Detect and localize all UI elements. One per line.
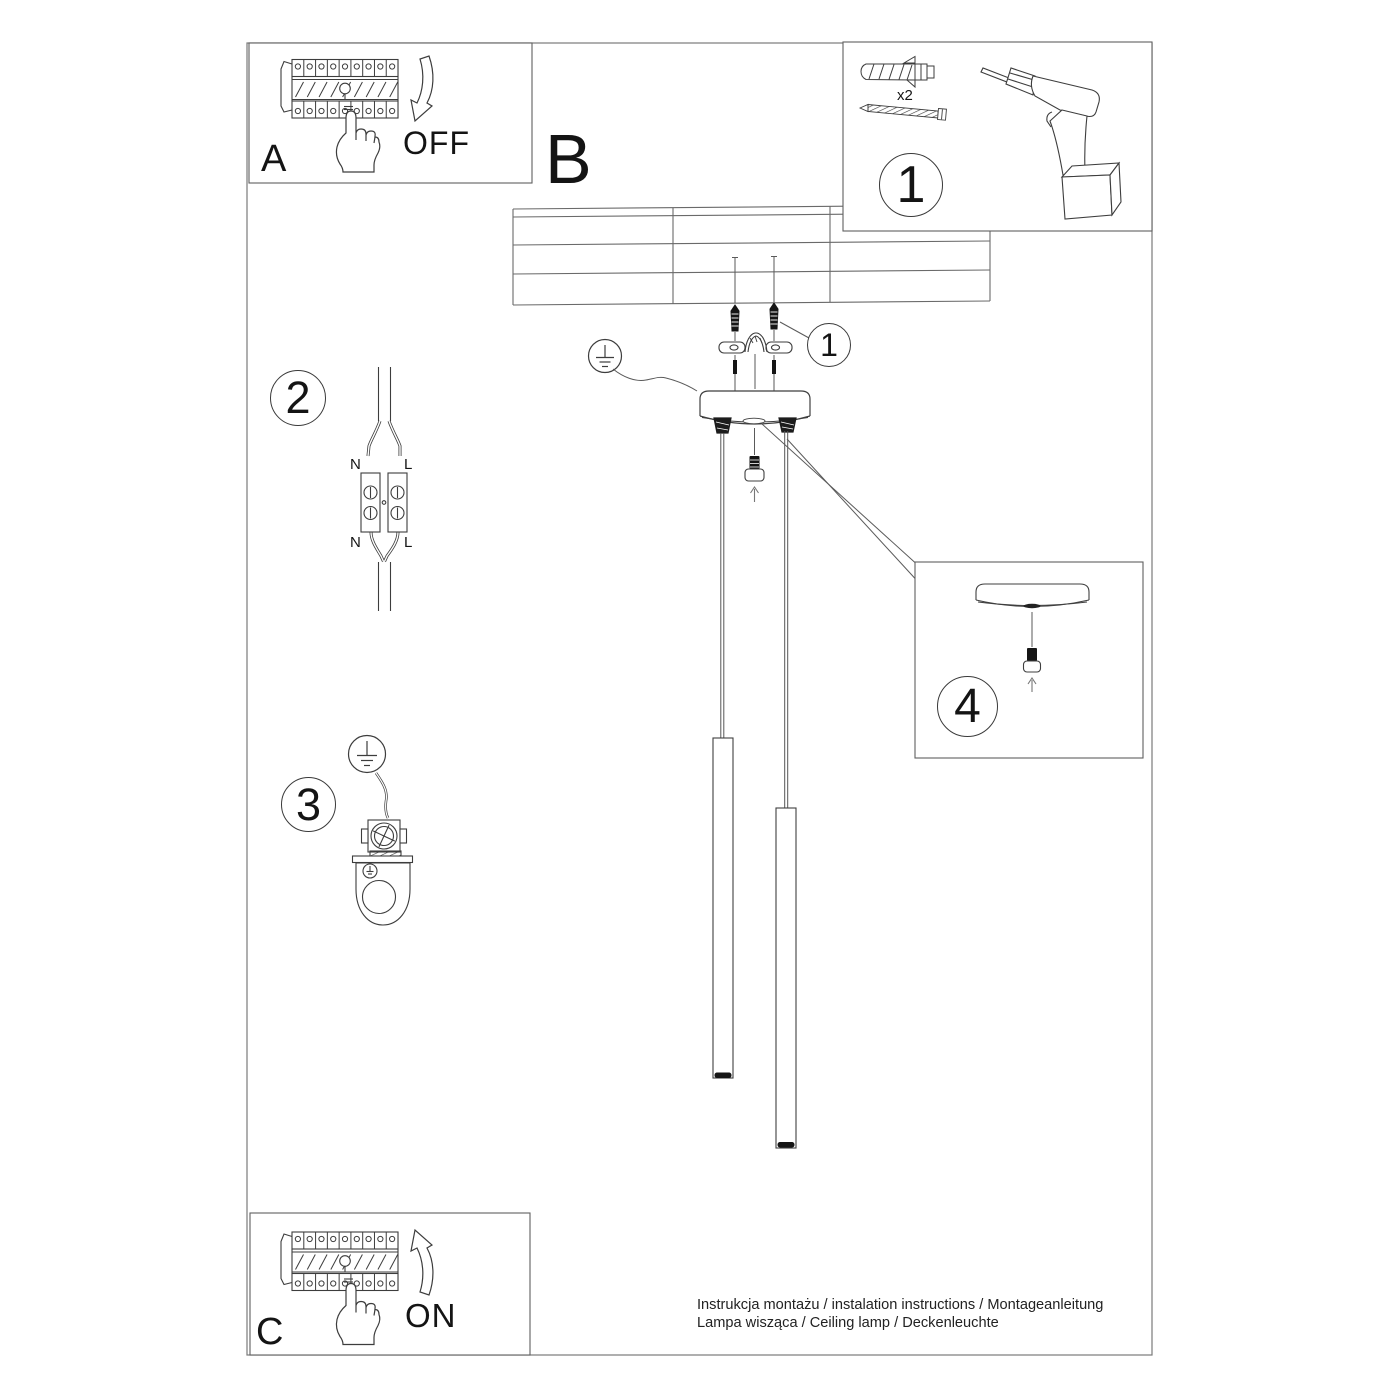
arrow-up-icon (751, 487, 759, 502)
anchor-count-label: x2 (897, 88, 913, 103)
step-1-badge: 1 (879, 153, 943, 217)
panel-b-label: B (545, 124, 592, 194)
mounting-strap (719, 333, 792, 353)
line-art (0, 0, 1400, 1400)
pendant-tube-left (713, 738, 733, 1078)
off-label: OFF (403, 127, 470, 159)
instruction-sheet: A OFF B C ON 1 x2 1 2 N L N L 3 4 Instru… (0, 0, 1400, 1400)
ceiling-canopy (700, 391, 810, 433)
earth-screw-terminal (362, 820, 407, 857)
screw-callout-badge: 1 (807, 323, 851, 367)
panel-a-box (249, 43, 532, 183)
wiring-diagram (361, 367, 407, 611)
footer-line-1: Instrukcja montażu / instalation instruc… (697, 1296, 1103, 1314)
on-label: ON (405, 1299, 457, 1332)
terminal-label-n-top: N (350, 457, 361, 472)
step-4-number: 4 (954, 679, 981, 734)
terminal-label-l-bottom: L (404, 535, 412, 550)
panel-c-label: C (256, 1313, 283, 1351)
mounting-bracket (353, 856, 413, 925)
step-3-badge: 3 (281, 777, 336, 832)
panel-a-label: A (261, 140, 286, 178)
earth-connection-diagram (349, 736, 413, 926)
pendant-tube-right (776, 808, 796, 1148)
terminal-block (361, 473, 407, 532)
screw-callout-number: 1 (820, 327, 838, 364)
footer-text: Instrukcja montażu / instalation instruc… (697, 1296, 1103, 1333)
screw-callout-leader (780, 322, 809, 338)
terminal-label-n-bottom: N (350, 535, 361, 550)
ground-icon (589, 340, 698, 392)
step-4-badge: 4 (937, 676, 998, 737)
step-2-number: 2 (285, 372, 310, 424)
canopy-bolt (745, 428, 764, 502)
panel-c-box (250, 1213, 530, 1355)
step-2-badge: 2 (270, 370, 326, 426)
step-1-number: 1 (897, 155, 926, 215)
ground-icon (349, 736, 386, 773)
terminal-label-l-top: L (404, 457, 412, 472)
mounting-screws (731, 303, 778, 341)
footer-line-2: Lampa wisząca / Ceiling lamp / Deckenleu… (697, 1314, 1103, 1332)
step-3-number: 3 (296, 779, 321, 831)
drill-guide-lines (732, 257, 777, 304)
